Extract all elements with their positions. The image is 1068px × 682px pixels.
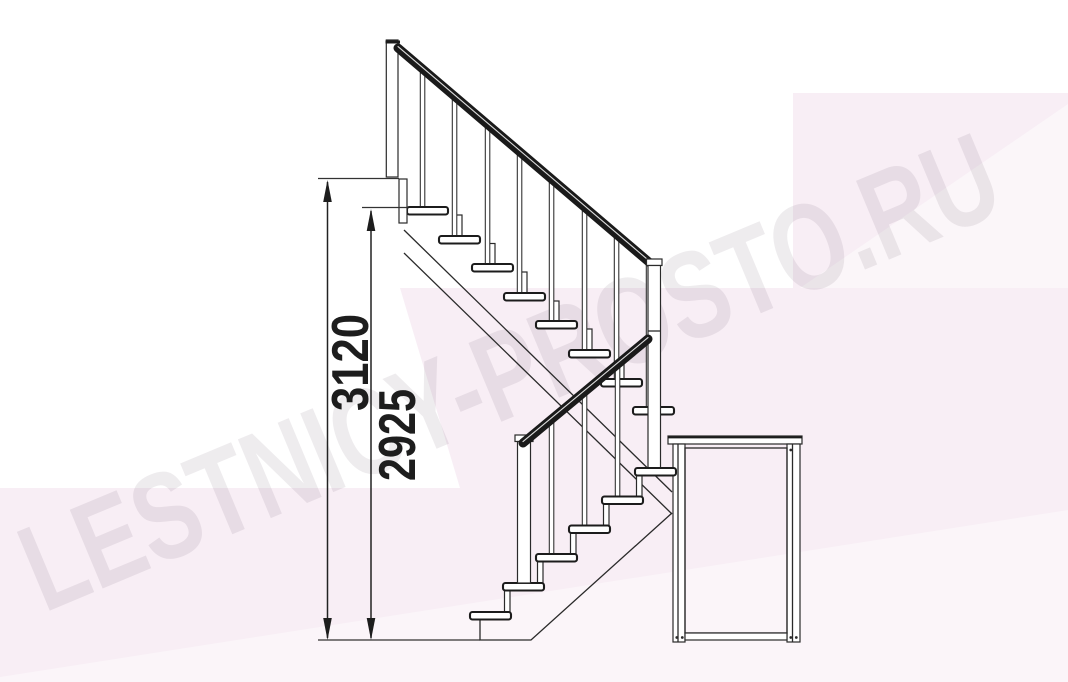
bottom-newel-post [518, 442, 531, 584]
baluster [615, 365, 620, 497]
tread [635, 468, 676, 476]
top-newel-post [386, 40, 398, 177]
step-support [571, 533, 577, 555]
baluster [549, 183, 554, 321]
middle-newel-cap [647, 259, 663, 266]
tread [536, 554, 577, 562]
screw-dot [795, 636, 798, 639]
tread [569, 526, 610, 534]
baluster [485, 128, 490, 264]
tread [602, 497, 643, 505]
tread [407, 207, 448, 215]
tread [504, 293, 545, 301]
middle-newel-post [648, 266, 661, 469]
platform-right-leg [787, 444, 800, 642]
middle-newel [647, 259, 663, 468]
baluster [452, 100, 457, 236]
tread [472, 264, 513, 272]
drawing-canvas: LESTNICY-PROSTO.RU [0, 0, 1068, 682]
tread [601, 379, 642, 387]
tread [470, 612, 511, 620]
baluster [420, 73, 425, 207]
baluster [517, 156, 522, 294]
baluster [614, 238, 619, 379]
screw-dot [789, 449, 792, 452]
staircase-technical-drawing: LESTNICY-PROSTO.RU [0, 0, 1068, 682]
step-support [637, 475, 643, 497]
baluster [582, 393, 587, 525]
landing-support-post [399, 179, 407, 223]
dimension-label-flight-height: 2925 [369, 389, 427, 481]
baluster [582, 211, 587, 350]
screw-dot [675, 636, 678, 639]
tread [439, 236, 480, 244]
step-support [604, 504, 610, 526]
screw-dot [681, 636, 684, 639]
step-support [505, 590, 511, 612]
tread [503, 583, 544, 591]
screw-dot [789, 636, 792, 639]
tread [536, 321, 577, 329]
baluster [549, 422, 554, 555]
step-support [538, 561, 544, 583]
platform-bottom-rail [685, 633, 787, 640]
tread [569, 350, 610, 358]
